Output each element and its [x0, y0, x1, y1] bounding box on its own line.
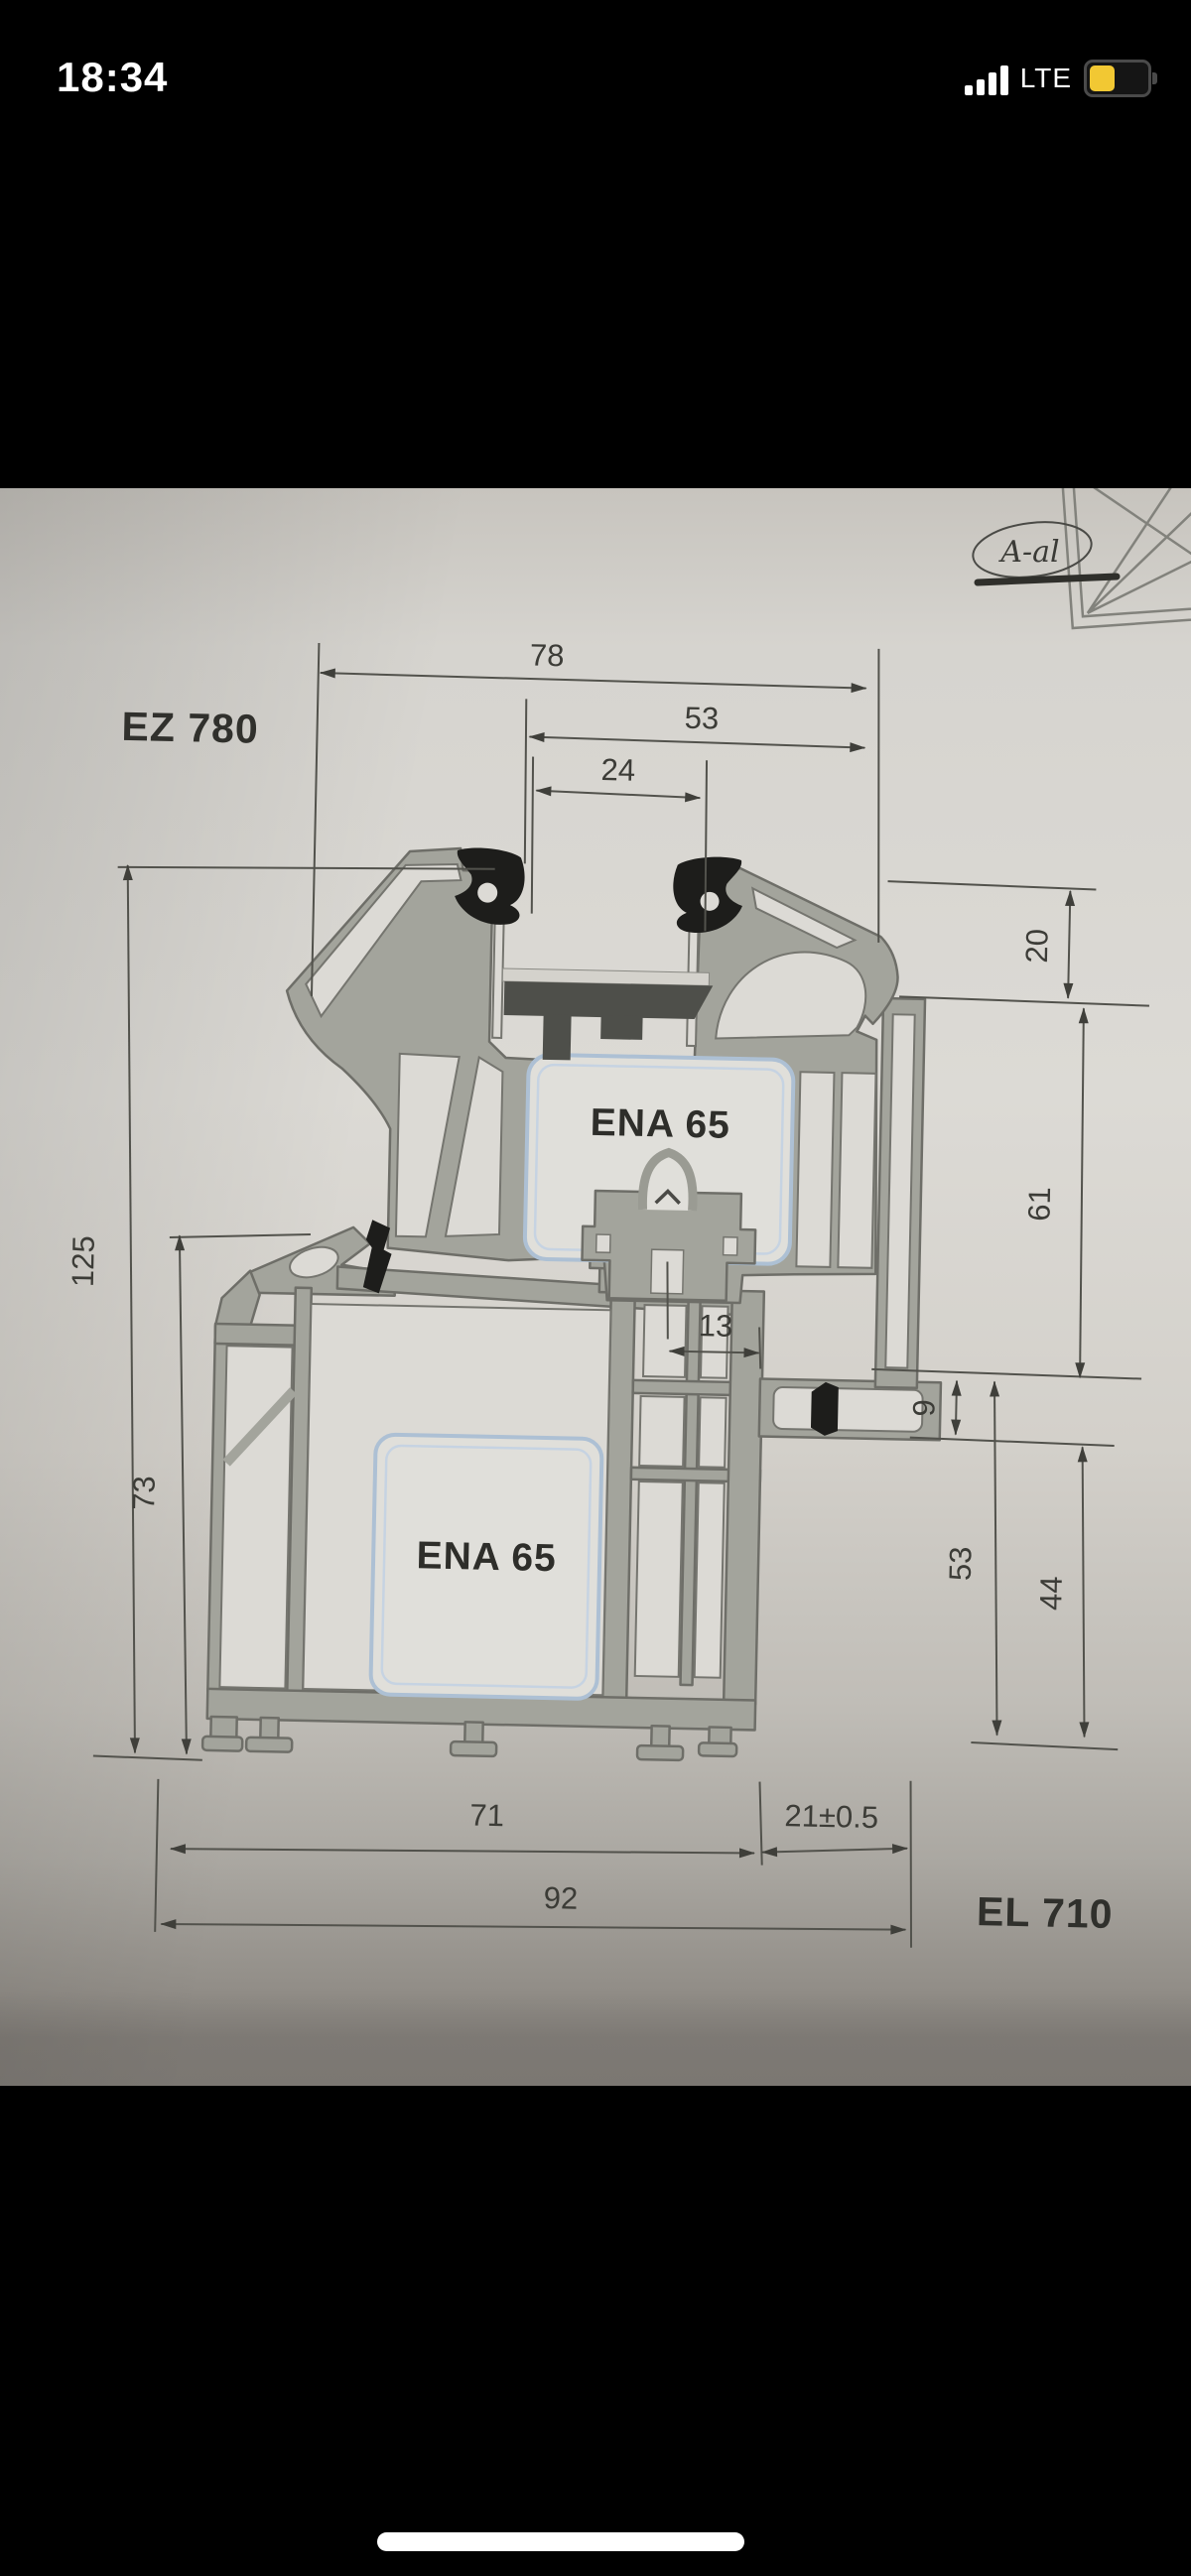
dim-overall-width: 78 — [530, 637, 565, 673]
dim-frame-width: 71 — [469, 1797, 504, 1833]
status-bar-right-cluster: LTE — [965, 60, 1151, 97]
dim-step-height: 9 — [906, 1399, 941, 1417]
dimension-labels: 78 53 24 20 61 9 53 44 125 73 13 71 21±0… — [53, 628, 1089, 1926]
photo-technical-drawing[interactable]: A-al — [0, 488, 1191, 2086]
dim-axis-offset: 13 — [698, 1308, 732, 1344]
insulation-label-upper: ENA 65 — [590, 1101, 730, 1147]
dim-right-inner-height: 53 — [943, 1546, 979, 1581]
dim-glazing-gap: 24 — [600, 752, 635, 788]
dim-overlap-height: 20 — [1019, 929, 1055, 964]
iphone-screen: 18:34 LTE A-al — [0, 0, 1191, 2576]
insulation-box-lower: ENA 65 — [370, 1434, 601, 1699]
status-bar: 18:34 LTE — [0, 0, 1191, 139]
dim-base-width: 92 — [543, 1880, 578, 1916]
home-indicator[interactable] — [377, 2532, 744, 2551]
network-type-label: LTE — [1020, 63, 1072, 94]
dim-edge-offset: 21±0.5 — [784, 1798, 878, 1835]
dim-rebate-height: 61 — [1021, 1187, 1057, 1222]
clock: 18:34 — [57, 54, 168, 101]
frame-gasket-clip-icon — [811, 1382, 839, 1437]
keyhole-bell — [642, 1152, 694, 1211]
battery-nub — [1152, 72, 1157, 84]
battery-fill — [1090, 65, 1115, 91]
dim-total-height: 125 — [66, 1235, 101, 1287]
frame-system-label: EL 710 — [977, 1888, 1114, 1937]
corner-window-sketch — [1061, 488, 1191, 628]
signature: A-al — [970, 516, 1117, 583]
signature-text: A-al — [997, 535, 1059, 570]
dim-frame-left-height: 73 — [126, 1476, 162, 1510]
dim-right-outer-height: 44 — [1033, 1576, 1069, 1610]
profile-cross-section-drawing: A-al — [0, 488, 1191, 2086]
glazing-packer — [501, 968, 714, 1063]
insulation-label-lower: ENA 65 — [416, 1534, 557, 1580]
sash-system-label: EZ 780 — [121, 704, 259, 752]
dim-sash-width: 53 — [684, 701, 719, 736]
cellular-signal-icon — [965, 62, 1008, 95]
battery-icon — [1084, 60, 1151, 97]
